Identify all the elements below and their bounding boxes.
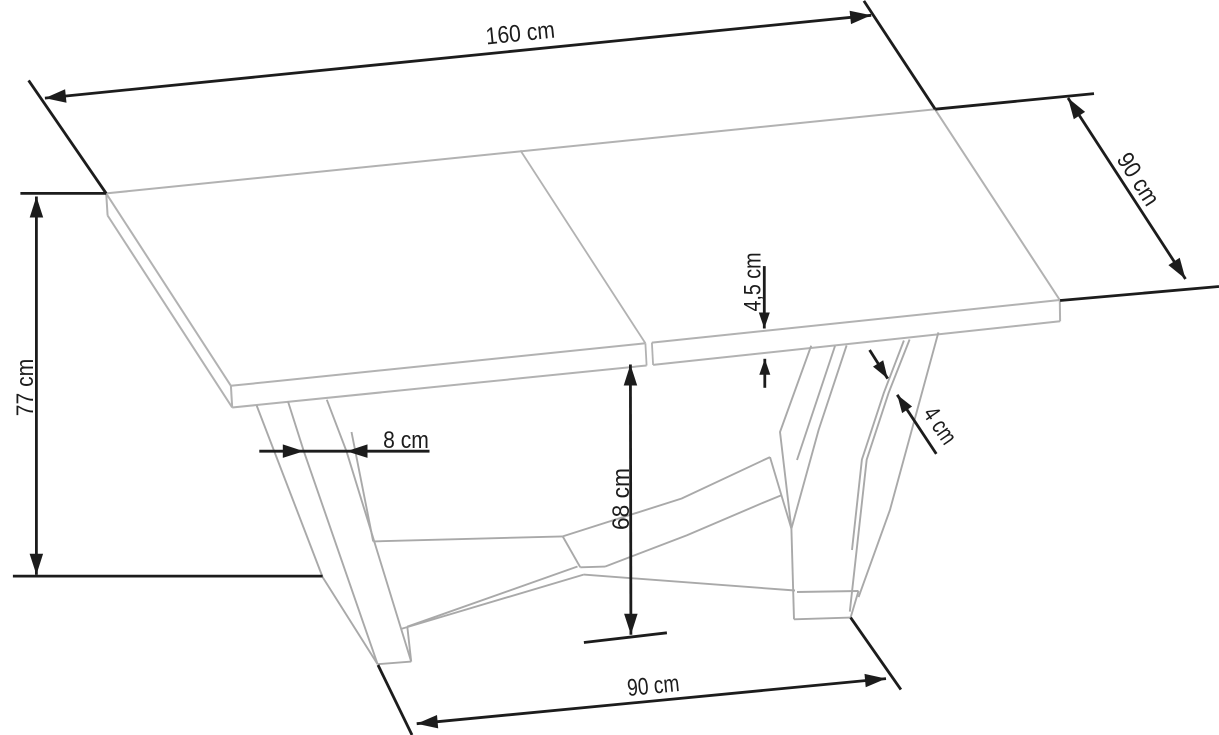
- svg-text:90 cm: 90 cm: [626, 669, 681, 702]
- svg-text:4,5 cm: 4,5 cm: [739, 252, 766, 311]
- svg-text:68 cm: 68 cm: [607, 468, 634, 530]
- svg-text:77 cm: 77 cm: [12, 359, 39, 416]
- svg-text:8 cm: 8 cm: [383, 427, 429, 454]
